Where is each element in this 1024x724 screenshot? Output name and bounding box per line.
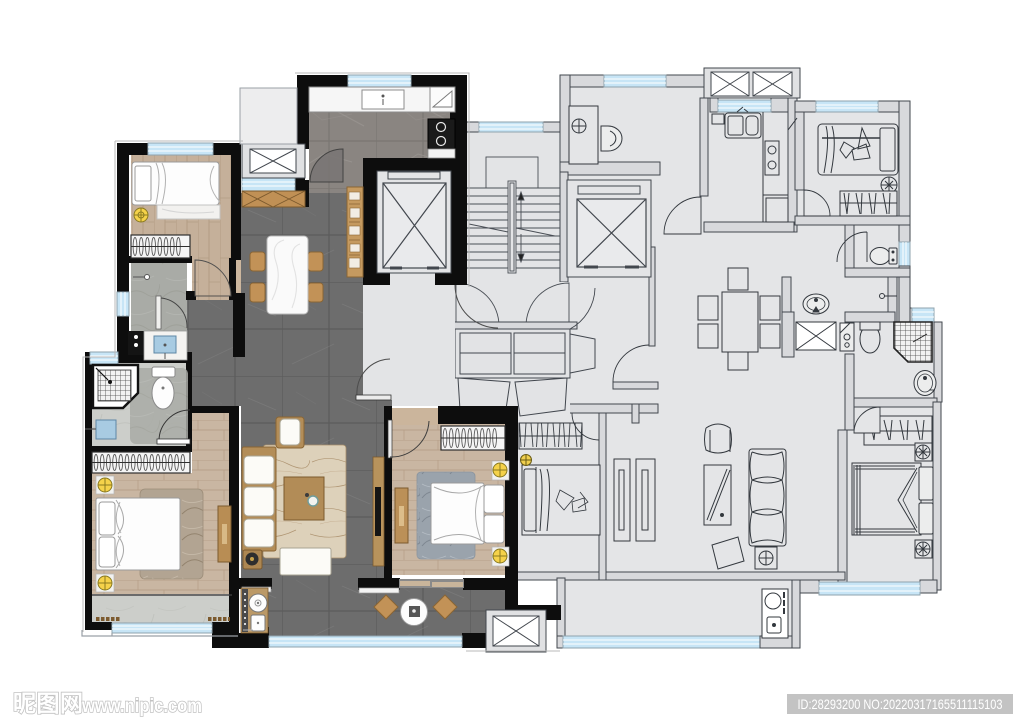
svg-text:ID:28293200 NO:202203171655111: ID:28293200 NO:20220317165511115103 [798, 696, 1003, 712]
svg-text:www.nipic.com: www.nipic.com [81, 696, 202, 717]
svg-text:昵图网: 昵图网 [13, 690, 84, 716]
